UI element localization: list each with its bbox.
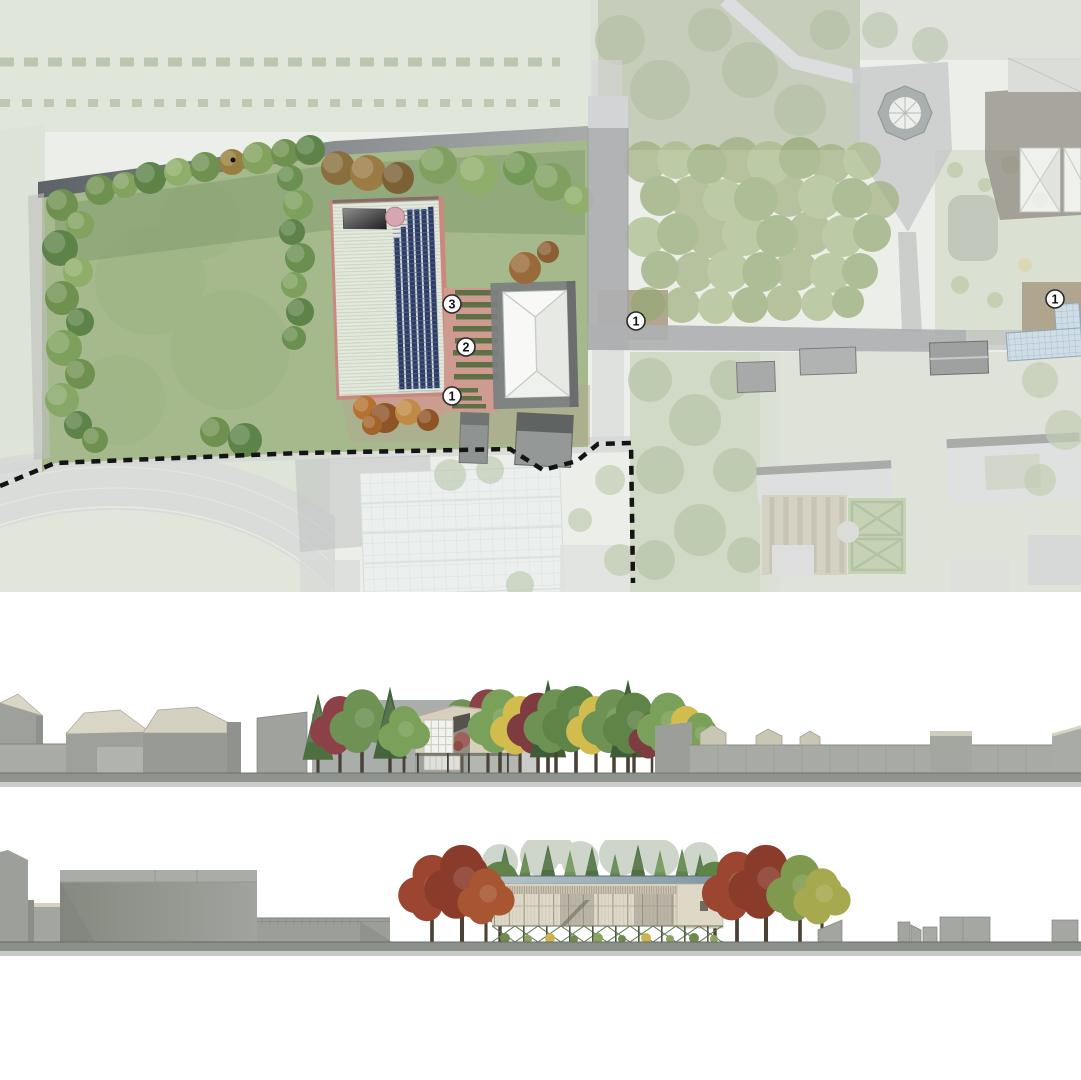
page: 3 2 1 1 1: [0, 0, 1081, 1080]
sheds-right: [818, 917, 1078, 942]
marker-2: 2: [457, 338, 475, 356]
svg-text:1: 1: [1052, 293, 1059, 307]
industrial-building-left: [0, 850, 392, 942]
skylight: [343, 207, 387, 230]
svg-text:3: 3: [449, 298, 456, 312]
ground-line-2: [0, 942, 1081, 956]
svg-text:1: 1: [449, 390, 456, 404]
main-building: [329, 196, 450, 400]
garden-elevation-view: [0, 840, 1081, 960]
pavilion-elevation: [492, 876, 723, 943]
boundary-wall-right: [655, 722, 1081, 773]
hip-roof-building: [1020, 148, 1081, 212]
svg-text:2: 2: [463, 341, 470, 355]
marker-1-road: 1: [627, 312, 645, 330]
roof-vent: [385, 207, 405, 227]
svg-text:1: 1: [633, 315, 640, 329]
white-roof-building: [490, 281, 578, 409]
street-elevation-view: [0, 680, 1081, 790]
marker-3: 3: [443, 295, 461, 313]
roof-band: [492, 876, 723, 884]
site-plan-view: 3 2 1 1 1: [0, 0, 1081, 592]
marker-1-east: 1: [1046, 290, 1064, 308]
marker-1-terrace: 1: [443, 387, 461, 405]
ground-line-1: [0, 773, 1081, 787]
context-buildings-left: [0, 694, 307, 773]
